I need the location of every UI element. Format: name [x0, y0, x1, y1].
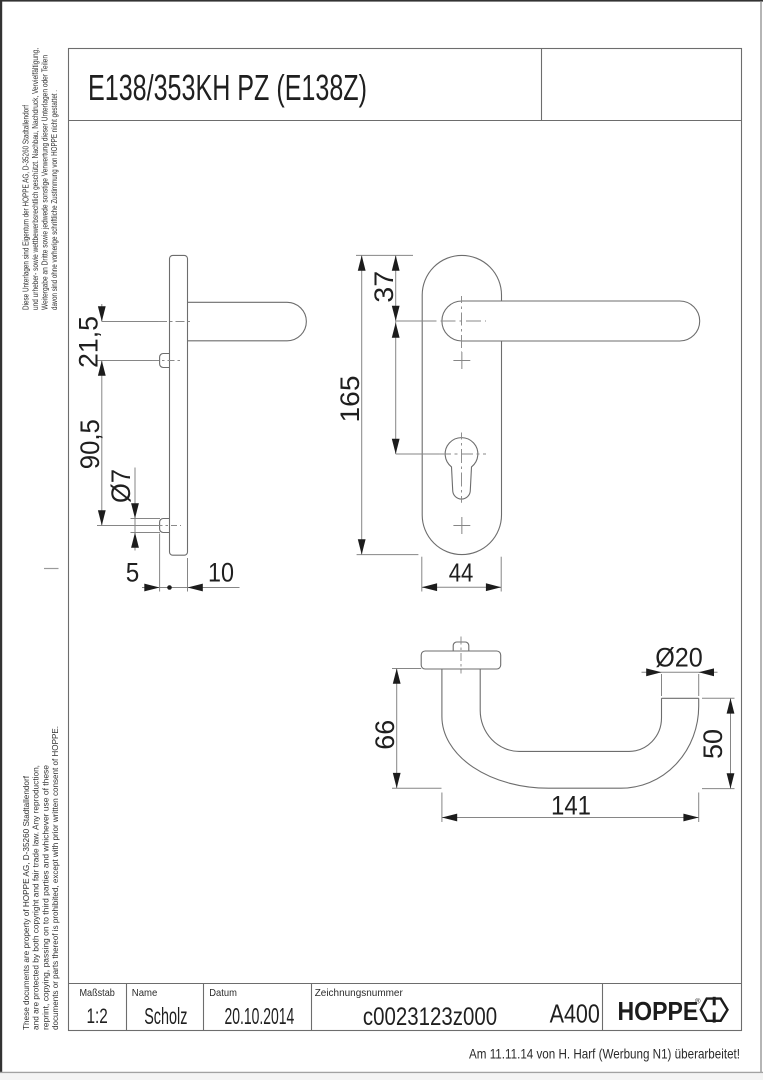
svg-text:10: 10 [208, 557, 234, 587]
svg-text:®: ® [695, 997, 701, 1006]
svg-text:50: 50 [698, 729, 728, 759]
svg-text:c0023123z000: c0023123z000 [363, 1003, 497, 1031]
svg-text:documents or parts thereof is: documents or parts thereof is prohibited… [51, 726, 60, 1030]
svg-text:141: 141 [551, 791, 591, 821]
svg-text:Ø7: Ø7 [106, 469, 136, 503]
svg-text:E138/353KH PZ (E138Z): E138/353KH PZ (E138Z) [88, 67, 367, 108]
svg-text:165: 165 [335, 376, 365, 423]
svg-text:90,5: 90,5 [75, 419, 105, 469]
svg-text:1:2: 1:2 [87, 1005, 108, 1028]
svg-text:Zeichnungsnummer: Zeichnungsnummer [315, 987, 404, 999]
svg-text:reprint, copying, passing on t: reprint, copying, passing on to third pa… [41, 764, 50, 1030]
svg-text:HOPPE: HOPPE [618, 998, 699, 1026]
svg-text:Maßstab: Maßstab [80, 987, 115, 999]
svg-text:Ø20: Ø20 [655, 642, 703, 672]
svg-text:A400: A400 [550, 999, 600, 1029]
svg-text:44: 44 [449, 557, 474, 587]
svg-text:21,5: 21,5 [74, 316, 104, 368]
svg-text:und urheber- sowie wettbewerbs: und urheber- sowie wettbewerbsrechtlich … [31, 48, 40, 310]
svg-text:Diese Unterlagen sind Eigentum: Diese Unterlagen sind Eigentum der HOPPE… [22, 104, 31, 310]
svg-text:and are protected by both copy: and are protected by both copyright and … [32, 765, 41, 1030]
svg-text:Scholz: Scholz [144, 1003, 187, 1029]
svg-text:These documents are property o: These documents are property of HOPPE AG… [22, 775, 31, 1030]
svg-text:5: 5 [126, 557, 140, 587]
svg-text:Name: Name [132, 987, 158, 999]
svg-text:davon sind ohne vorherige schr: davon sind ohne vorherige schriftliche Z… [50, 90, 59, 310]
svg-text:37: 37 [369, 271, 399, 303]
svg-text:Weitergabe an Dritte sowie jed: Weitergabe an Dritte sowie jedwede sonst… [41, 55, 50, 310]
svg-text:Am 11.11.14 von H. Harf (Werbu: Am 11.11.14 von H. Harf (Werbung N1) übe… [469, 1046, 740, 1062]
svg-text:20.10.2014: 20.10.2014 [225, 1003, 295, 1029]
svg-text:66: 66 [370, 720, 400, 750]
svg-text:Datum: Datum [209, 987, 237, 999]
